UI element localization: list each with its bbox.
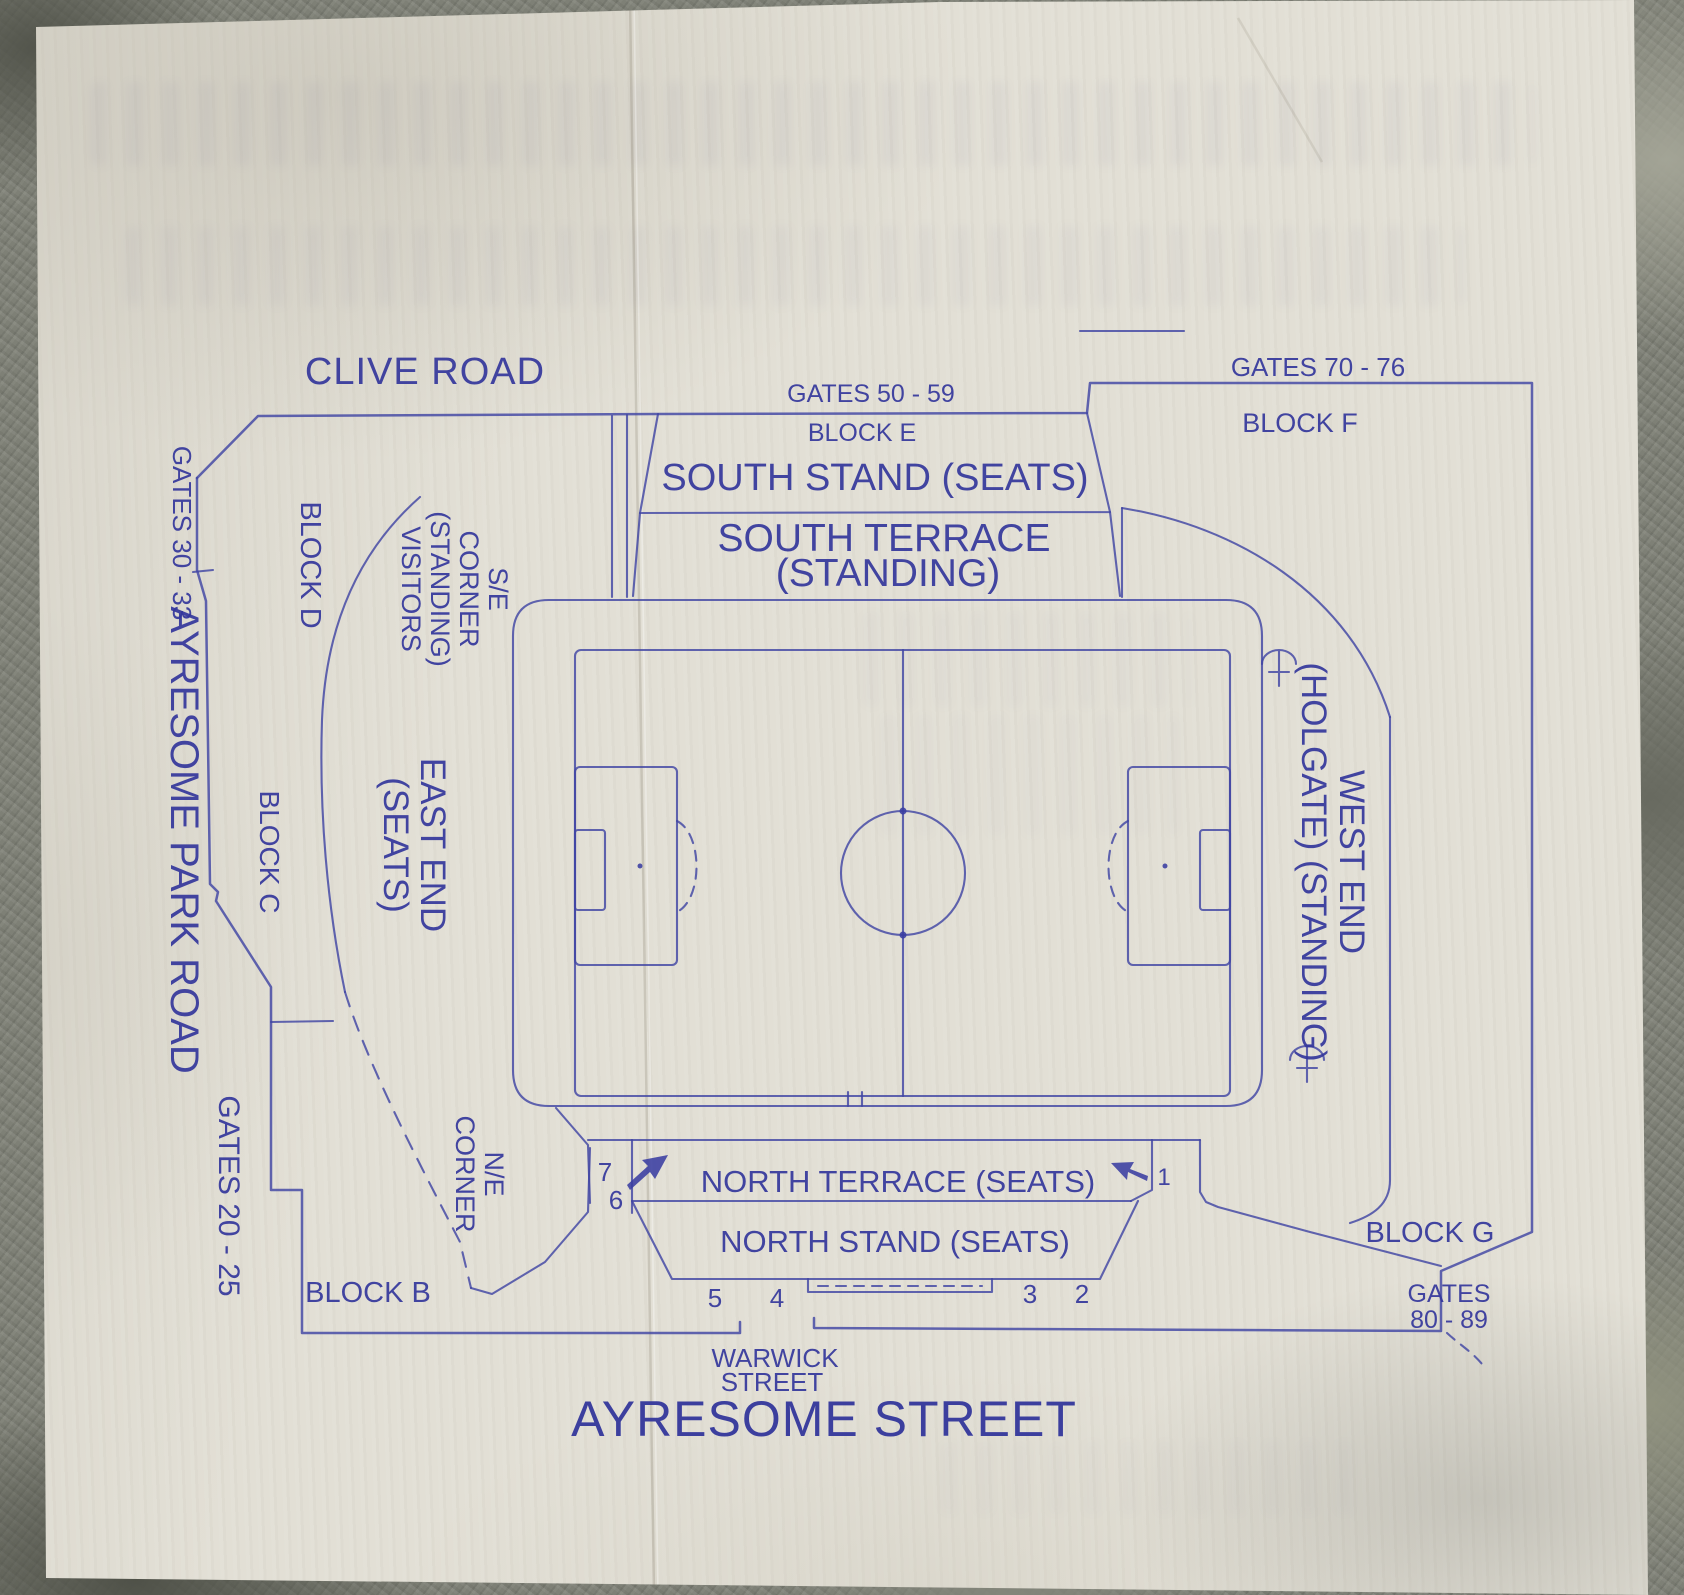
umbrella-icon xyxy=(1262,650,1296,686)
label-block-b: BLOCK B xyxy=(305,1277,431,1309)
label-east-end: EAST END xyxy=(413,758,452,932)
label-north-stand: NORTH STAND (SEATS) xyxy=(720,1224,1070,1259)
penalty-area-left xyxy=(575,767,677,965)
label-gates-20-25: GATES 20 - 25 xyxy=(212,1095,245,1296)
goal-area-left xyxy=(575,830,605,910)
penalty-spot-right xyxy=(1163,864,1168,869)
label-block-c: BLOCK C xyxy=(254,791,285,914)
label-se-corner-3: (STANDING) xyxy=(425,511,455,667)
entrance-number-1: 1 xyxy=(1157,1164,1170,1191)
label-clive-road: CLIVE ROAD xyxy=(305,351,545,393)
screenshot-root: { "colors": { "ink_blue": "#34379c", "pa… xyxy=(0,0,1684,1595)
label-ayresome-street: AYRESOME STREET xyxy=(571,1391,1077,1447)
label-east-end-seats: (SEATS) xyxy=(376,777,415,912)
arrow-icon xyxy=(1111,1162,1148,1181)
label-block-d: BLOCK D xyxy=(294,501,326,628)
tunnel-tick xyxy=(848,1092,862,1106)
label-south-terrace-standing: (STANDING) xyxy=(776,552,1001,595)
entrance-number-4: 4 xyxy=(770,1283,784,1313)
label-se-corner-2: CORNER xyxy=(454,530,484,647)
entrance-number-3: 3 xyxy=(1023,1279,1037,1309)
goal-area-right xyxy=(1200,830,1230,910)
entrance-number-6: 6 xyxy=(609,1185,623,1215)
paper-crease xyxy=(1238,18,1322,162)
stadium-plan: CLIVE ROAD GATES 50 - 59 GATES 70 - 76 B… xyxy=(0,0,1684,1595)
penalty-arc-left xyxy=(677,821,697,912)
center-mark xyxy=(900,808,907,815)
label-se-corner-4: VISITORS xyxy=(396,526,426,652)
label-gates-80-89-2: 80 - 89 xyxy=(1410,1306,1488,1334)
penalty-area-right xyxy=(1128,767,1230,965)
label-west-end: WEST END xyxy=(1332,770,1371,954)
label-south-stand: SOUTH STAND (SEATS) xyxy=(661,457,1088,499)
block-divider-tick xyxy=(271,1021,333,1022)
label-gates-50-59: GATES 50 - 59 xyxy=(787,380,955,408)
entrance-number-7: 7 xyxy=(598,1157,612,1187)
label-se-corner-1: S/E xyxy=(483,567,513,611)
label-west-end-holgate: (HOLGATE) (STANDING) xyxy=(1294,662,1333,1061)
label-gates-30-33: GATES 30 - 33 xyxy=(167,446,197,620)
label-block-f: BLOCK F xyxy=(1242,408,1358,438)
paper-crease xyxy=(630,0,654,1595)
paper-crease xyxy=(634,0,658,1595)
center-mark xyxy=(900,932,907,939)
gates-80-89-kerb xyxy=(1447,1333,1482,1364)
pitch xyxy=(575,650,1230,1096)
scanned-paper: CLIVE ROAD GATES 50 - 59 GATES 70 - 76 B… xyxy=(0,0,1684,1595)
label-north-terrace: NORTH TERRACE (SEATS) xyxy=(701,1164,1095,1199)
label-block-g: BLOCK G xyxy=(1366,1217,1495,1249)
label-gates-80-89-1: GATES xyxy=(1408,1280,1491,1308)
label-ne-corner-1: N/E xyxy=(479,1151,509,1196)
inner-bowl xyxy=(513,600,1262,1106)
label-ayresome-park-road: AYRESOME PARK ROAD xyxy=(162,606,206,1074)
label-ne-corner-2: CORNER xyxy=(450,1115,480,1232)
label-block-e: BLOCK E xyxy=(808,419,916,447)
label-gates-70-76: GATES 70 - 76 xyxy=(1231,352,1405,382)
se-corner-boundary xyxy=(612,415,627,597)
entrance-number-2: 2 xyxy=(1075,1279,1089,1309)
penalty-spot-left xyxy=(638,864,643,869)
penalty-arc-right xyxy=(1109,821,1129,912)
entrance-number-5: 5 xyxy=(708,1283,722,1313)
